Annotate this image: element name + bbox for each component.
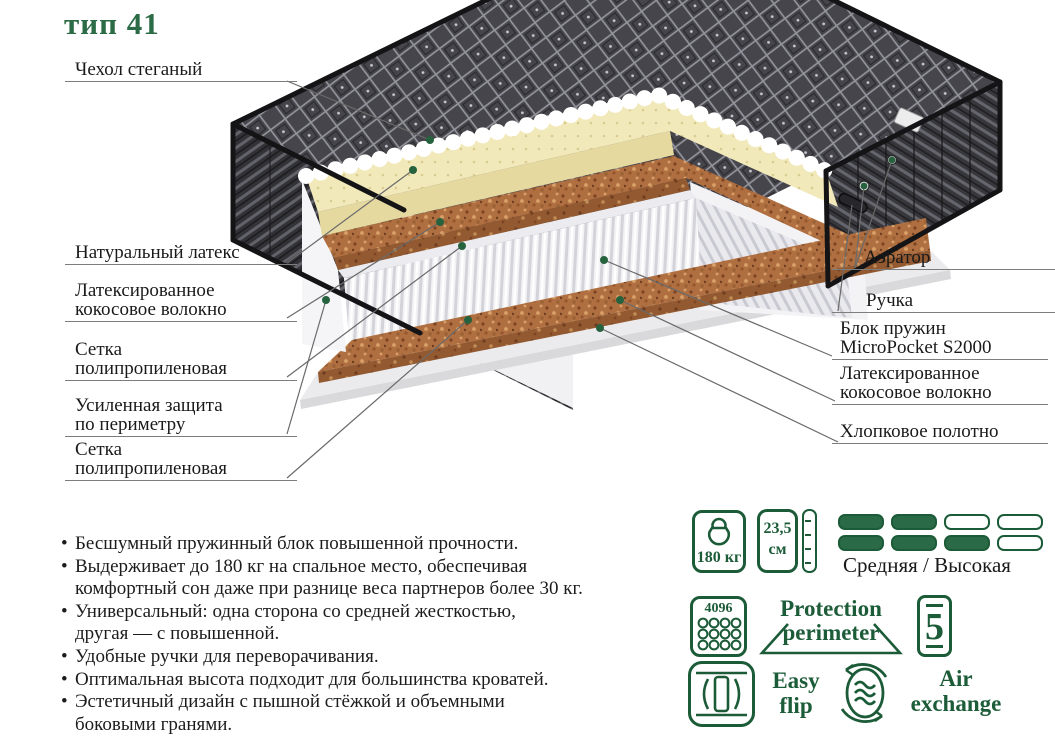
list-item: Эстетичный дизайн с пышной стёжкой и объ… xyxy=(75,691,615,736)
list-item: Выдерживает до 180 кг на спальное место,… xyxy=(75,556,615,601)
easy-flip-icon xyxy=(691,664,752,724)
max-weight-value: 180 кг xyxy=(697,549,741,570)
page-title: тип 41 xyxy=(64,6,160,42)
label-natural-latex: Натуральный латекс xyxy=(65,243,297,265)
label-pp-net-2: Сеткаполипропиленовая xyxy=(65,440,297,481)
label-quilted-cover: Чехол стеганый xyxy=(65,60,297,82)
easy-flip-label: Easy flip xyxy=(757,668,835,718)
label-perimeter-protection: Усиленная защитапо периметру xyxy=(65,396,297,437)
air-exchange-label: Air exchange xyxy=(900,666,1012,716)
height-badge: 23,5 см xyxy=(757,509,798,573)
list-item: Оптимальная высота подходит для большинс… xyxy=(75,669,615,692)
springs-count-badge: 4096 xyxy=(690,596,747,657)
height-unit: см xyxy=(769,541,787,562)
easy-flip-badge xyxy=(688,661,755,727)
warranty-years: 5 xyxy=(920,605,949,649)
list-item: Универсальный: одна сторона со средней ж… xyxy=(75,601,615,646)
list-item: Удобные ручки для переворачивания. xyxy=(75,646,615,669)
springs-count-value: 4096 xyxy=(705,599,733,617)
feature-list: Бесшумный пружинный блок повышенной проч… xyxy=(75,533,615,736)
warranty-5-badge: 5 xyxy=(917,595,952,657)
firmness-label: Средняя / Высокая xyxy=(843,553,1011,578)
kettlebell-icon xyxy=(702,515,736,549)
pocket-springs-icon xyxy=(695,617,743,653)
label-latex-coir-left: Латексированноекокосовое волокно xyxy=(65,281,297,322)
label-cotton-fabric: Хлопковое полотно xyxy=(832,422,1048,444)
label-latex-coir-right: Латексированноекокосовое волокно xyxy=(832,364,1048,405)
list-item: Бесшумный пружинный блок повышенной проч… xyxy=(75,533,615,556)
ruler-icon xyxy=(802,509,817,573)
label-aerator: Аэратор xyxy=(832,248,1055,270)
mattress-infographic: тип 41 Чехол стеганый Натуральный латекс… xyxy=(0,0,1055,736)
air-exchange-icon xyxy=(827,656,901,730)
label-spring-block: Блок пружинMicroPocket S2000 xyxy=(832,319,1048,360)
height-value: 23,5 xyxy=(764,520,792,541)
label-handle: Ручка xyxy=(832,291,1055,313)
protection-perimeter-feature: Protection perimeter xyxy=(752,597,910,645)
label-pp-net-1: Сеткаполипропиленовая xyxy=(65,340,297,381)
max-weight-badge: 180 кг xyxy=(692,510,746,573)
